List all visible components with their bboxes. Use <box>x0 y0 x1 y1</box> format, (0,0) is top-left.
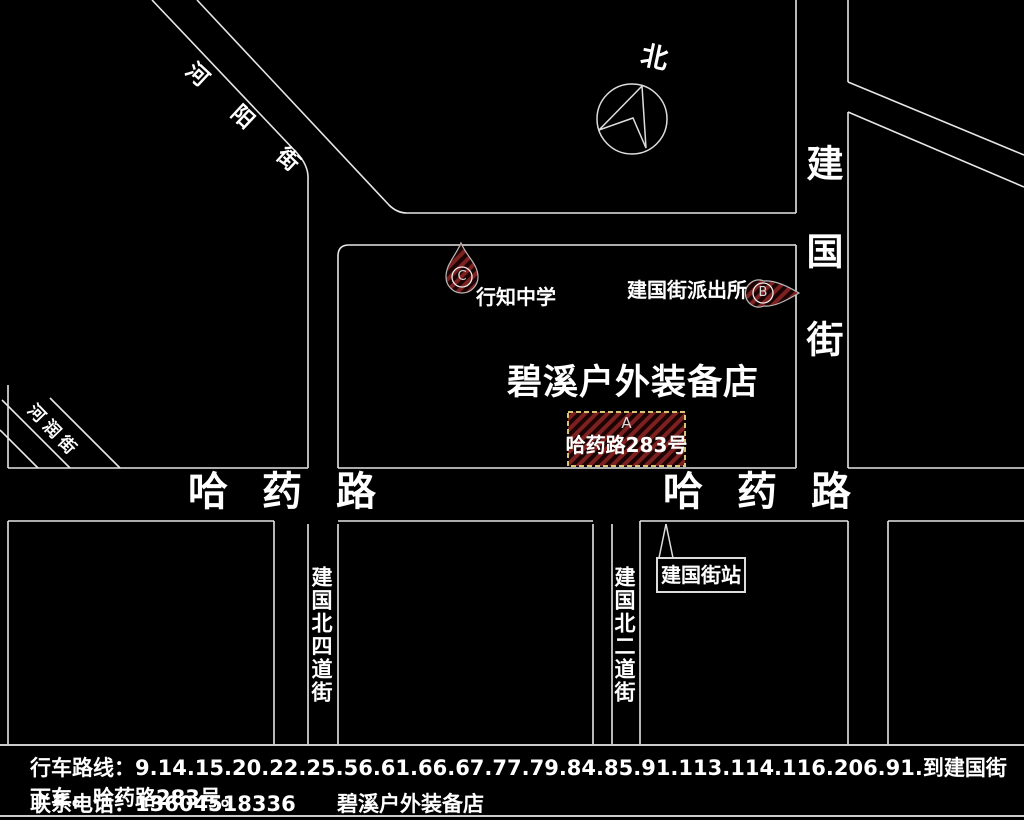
road-heyang-north-edge <box>197 0 796 213</box>
marker-a-content: A 哈药路283号 <box>568 412 685 466</box>
road-label-hayao-road-left: 哈药路 <box>188 472 410 512</box>
road-label-hayao-road-right: 哈药路 <box>663 472 885 512</box>
road-herun-edge-1 <box>0 430 38 468</box>
marker-c-letter: C <box>452 270 472 284</box>
store-title: 碧溪户外装备店 <box>507 366 759 401</box>
map-canvas <box>0 0 1024 820</box>
station-callout-tail-right <box>666 524 673 558</box>
road-topright-diagonal-lower <box>848 112 1024 187</box>
marker-c-pin-icon <box>446 243 478 293</box>
footer-store-name: 碧溪户外装备店 <box>337 792 484 816</box>
footer-contact-line: 联系电话：13604518336 碧溪户外装备店 <box>30 788 484 818</box>
marker-a-letter: A <box>621 414 631 432</box>
marker-a-address-label: 哈药路283号 <box>566 432 688 458</box>
poi-label-xingzhi-school: 行知中学 <box>476 287 556 307</box>
road-label-jianguo-north-4th: 建国北四道街 <box>310 566 331 704</box>
road-label-jianguo-north-2nd: 建国北二道街 <box>613 566 634 704</box>
station-callout-tail-left <box>659 524 666 558</box>
bus-station-callout: 建国街站 <box>657 558 745 592</box>
poi-label-jianguo-police-station: 建国街派出所 <box>627 280 747 300</box>
road-label-jianguo-street: 建国街 <box>803 144 840 408</box>
marker-b-letter: B <box>753 286 773 300</box>
road-heyang-west-edge <box>152 0 308 468</box>
store-location-map: 河阳街 河润街 北 建国街 哈药路 哈药路 建国北四道街 建国北二道街 行知中学… <box>0 0 1024 820</box>
footer-contact-phone: 联系电话：13604518336 <box>30 792 296 816</box>
bus-station-label: 建国街站 <box>661 565 741 585</box>
compass-north-label: 北 <box>638 42 670 74</box>
road-topright-diagonal-upper <box>848 82 1024 155</box>
